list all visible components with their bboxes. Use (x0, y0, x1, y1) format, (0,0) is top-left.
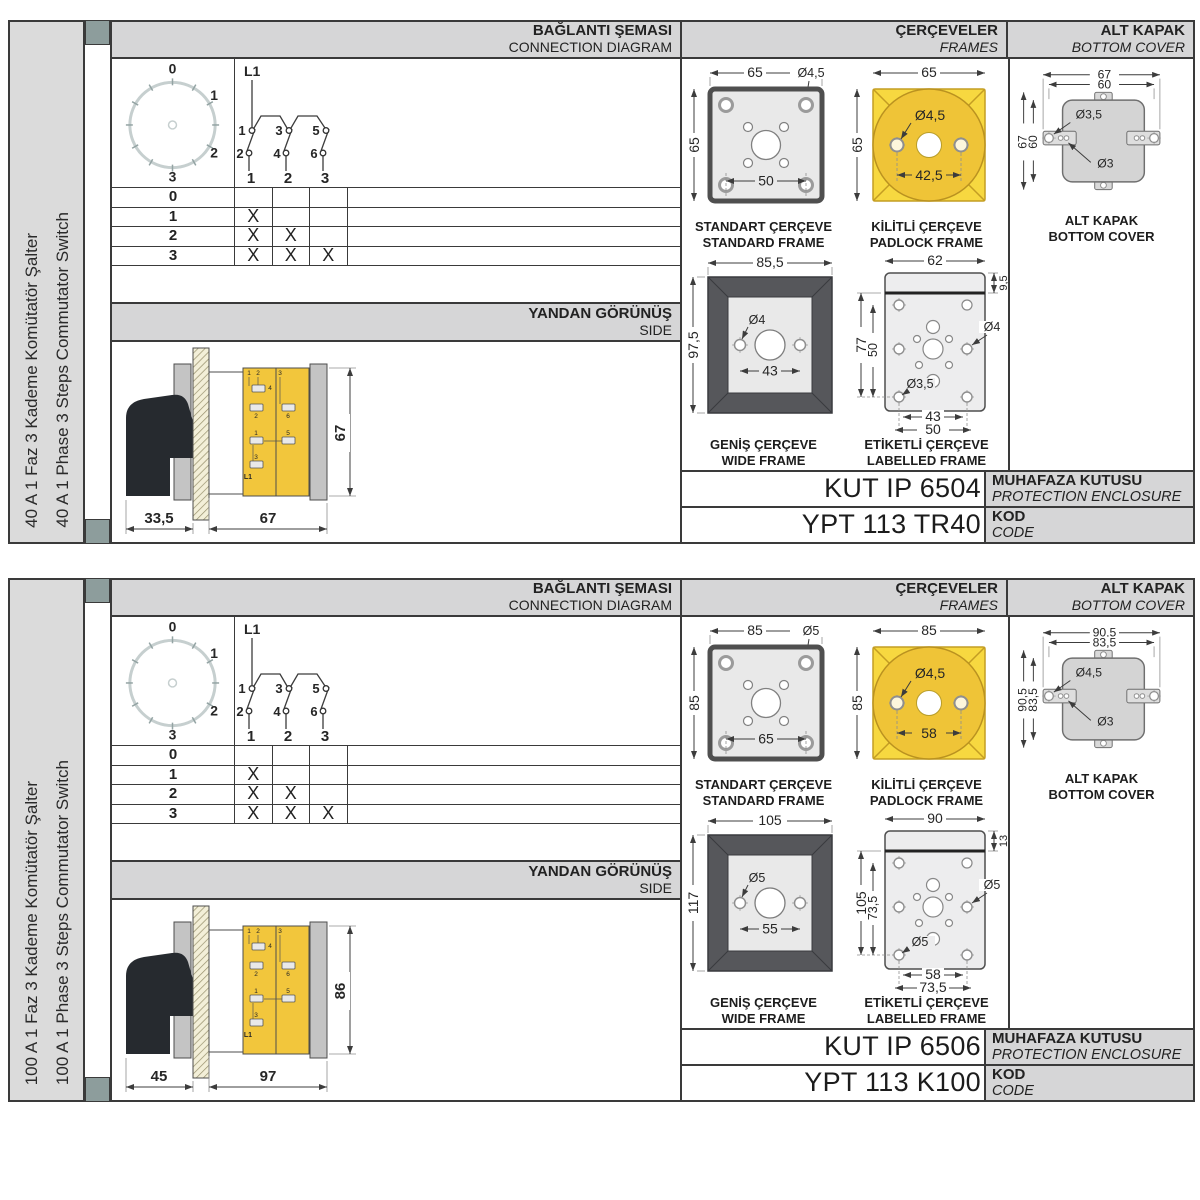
dial-pos-2: 2 (210, 145, 218, 161)
dim-cover-w2: 60 (1098, 77, 1112, 91)
strip-square-top (85, 20, 110, 45)
wiring-schematic: L1 (235, 617, 679, 743)
spacer (112, 824, 680, 860)
header-connection-en: CONNECTION DIAGRAM (120, 40, 672, 56)
row-label: 1 (112, 208, 235, 227)
row-filler (348, 805, 681, 824)
contact-lower-2: 2 (236, 704, 243, 719)
dial-pos-2: 2 (210, 703, 218, 719)
dim-padlock-width: 85 (921, 622, 937, 638)
center-shaft-hole (755, 330, 785, 360)
row-filler (348, 746, 681, 765)
enclosure-row: KUT IP 6506 MUHAFAZA KUTUSU PROTECTION E… (682, 1028, 1193, 1064)
dim-cover-w2: 83,5 (1093, 635, 1117, 649)
circuit-cell: L1 (235, 617, 680, 745)
dial-pos-3: 3 (169, 169, 177, 185)
caption-labelled-en: LABELLED FRAME (864, 453, 988, 469)
dim-labelled-width: 62 (927, 253, 943, 268)
bottom-cover-caption: ALT KAPAK BOTTOM COVER (1049, 213, 1155, 246)
labelled-frame-drawing: 62 9,5 77 50 (845, 253, 1008, 437)
caption-standard-en: STANDARD FRAME (695, 235, 832, 251)
bottom-cover-header: ALT KAPAK BOTTOM COVER (1008, 580, 1193, 617)
center-shaft-hole (752, 689, 781, 718)
header-side-en: SIDE (120, 323, 672, 339)
mini-label: 3 (254, 454, 258, 461)
header-cover-tr: ALT KAPAK (1016, 23, 1185, 40)
contact-lower-4: 4 (273, 146, 281, 161)
caption-wide-en: WIDE FRAME (710, 1011, 817, 1027)
dim-wide-hole-dia: Ø4 (749, 313, 766, 327)
contact-upper-1: 1 (238, 681, 245, 696)
table-row: 2 X X (112, 227, 680, 247)
product-code-value: YPT 113 TR40 (682, 508, 984, 542)
frames-panel: 65 Ø4,5 65 (682, 59, 1008, 470)
standard-frame-caption: STANDART ÇERÇEVE STANDARD FRAME (695, 219, 832, 252)
output-numbers: 1 2 3 (247, 170, 329, 185)
table-row: 1 X (112, 208, 680, 228)
mark-cell (235, 188, 273, 207)
row-label: 1 (112, 766, 235, 785)
enclosure-row: KUT IP 6504 MUHAFAZA KUTUSU PROTECTION E… (682, 470, 1193, 506)
diagram-row: 0 1 2 3 L1 (112, 617, 680, 746)
mark-cell: X (235, 208, 273, 227)
product-side-label: 100 A 1 Faz 3 Kademe Komütatör Şalter 10… (8, 578, 85, 1102)
wide-frame-drawing: 85,5 97,5 (682, 253, 845, 437)
enclosure-code-value: KUT IP 6506 (682, 1030, 984, 1064)
frames-header: ÇERÇEVELER FRAMES (682, 580, 1008, 617)
dim-labelled-corner-dia: Ø5 (912, 935, 929, 949)
standard-frame-caption: STANDART ÇERÇEVE STANDARD FRAME (695, 777, 832, 810)
dim-side-body: 67 (260, 510, 277, 527)
dim-side-front: 33,5 (144, 510, 173, 527)
header-cover-en: BOTTOM COVER (1016, 40, 1185, 56)
mini-label: 5 (286, 430, 290, 437)
header-frames-en: FRAMES (690, 598, 998, 614)
table-row: 1 X (112, 766, 680, 786)
wiring-schematic: L1 (235, 59, 679, 185)
mini-label: 4 (268, 943, 272, 950)
contact-upper-1: 1 (238, 123, 245, 138)
contact-upper-5: 5 (312, 681, 319, 696)
dim-labelled-strip: 13 (998, 835, 1008, 847)
mark-cell: X (235, 227, 273, 246)
mark-cell: X (273, 785, 311, 804)
dim-cover-dia2: Ø3 (1097, 156, 1113, 170)
dim-wide-height: 117 (685, 892, 701, 915)
mark-cell (310, 785, 348, 804)
circuit-phase-label: L1 (244, 63, 261, 79)
dim-standard-hole-dia: Ø4,5 (797, 66, 824, 80)
caption-standard-tr: STANDART ÇERÇEVE (695, 219, 832, 235)
switch-side-body: 1 2 4 2 3 6 1 5 3 L1 (126, 348, 327, 520)
dim-padlock-hole-dia: Ø4,5 (915, 665, 946, 681)
mini-label: 1 (247, 370, 251, 377)
contact-lower-4: 4 (273, 704, 281, 719)
row-filler (348, 227, 681, 246)
product-title-english: 40 A 1 Phase 3 Steps Commutator Switch (54, 212, 71, 528)
caption-cover-en: BOTTOM COVER (1049, 787, 1155, 803)
dim-side-height: 67 (332, 425, 349, 442)
mini-label: 4 (268, 385, 272, 392)
mark-cell: X (310, 247, 348, 266)
mark-cell (310, 188, 348, 207)
connection-diagram-panel: 0 1 2 3 L1 (112, 617, 682, 1100)
wide-frame-figure: 105 117 (682, 811, 845, 1028)
dim-labelled-side-dia: Ø5 (984, 878, 1001, 892)
product-main-panel: BAĞLANTI ŞEMASI CONNECTION DIAGRAM ÇERÇE… (110, 578, 1195, 1102)
dim-standard-width: 65 (747, 64, 763, 80)
code-row: YPT 113 K100 KOD CODE (682, 1064, 1193, 1100)
caption-labelled-en: LABELLED FRAME (864, 1011, 988, 1027)
dim-padlock-hole-dia: Ø4,5 (915, 107, 946, 123)
enclosure-label: MUHAFAZA KUTUSU PROTECTION ENCLOSURE (984, 1030, 1193, 1064)
side-view-area: 1 2 4 2 3 6 1 5 3 L1 (112, 900, 680, 1100)
code-label-en: CODE (992, 1083, 1187, 1100)
contact-upper-5: 5 (312, 123, 319, 138)
circuit-cell: L1 (235, 59, 680, 187)
contact-upper-3: 3 (275, 123, 282, 138)
enclosure-label: MUHAFAZA KUTUSU PROTECTION ENCLOSURE (984, 472, 1193, 506)
mini-label: 3 (254, 1012, 258, 1019)
mini-label: 2 (256, 928, 260, 935)
bottom-cover-caption: ALT KAPAK BOTTOM COVER (1049, 771, 1155, 804)
side-view-drawing: 1 2 4 2 3 6 1 5 3 L1 (112, 900, 678, 1096)
header-cover-en: BOTTOM COVER (1016, 598, 1185, 614)
caption-labelled-tr: ETİKETLİ ÇERÇEVE (864, 437, 988, 453)
dim-padlock-spacing: 58 (921, 725, 937, 741)
row-filler (348, 188, 681, 207)
mini-label: 1 (254, 988, 258, 995)
binding-strip (85, 578, 110, 1102)
contact-lower-2: 2 (236, 146, 243, 161)
padlock-frame-figure: 85 85 (845, 619, 1008, 811)
dial-ticks (126, 78, 219, 171)
caption-wide-en: WIDE FRAME (710, 453, 817, 469)
code-label-en: CODE (992, 525, 1187, 542)
caption-padlock-en: PADLOCK FRAME (870, 793, 983, 809)
code-row: YPT 113 TR40 KOD CODE (682, 506, 1193, 542)
mini-label: 3 (278, 928, 282, 935)
frames-header: ÇERÇEVELER FRAMES (682, 22, 1008, 59)
dim-side-front: 45 (151, 1068, 168, 1085)
dial-pos-3: 3 (169, 727, 177, 743)
mark-cell: X (235, 785, 273, 804)
bottom-cover-header: ALT KAPAK BOTTOM COVER (1008, 22, 1193, 59)
product-code-value: YPT 113 K100 (682, 1066, 984, 1100)
dim-labelled-strip: 9,5 (998, 275, 1008, 290)
product-title-turkish: 100 A 1 Faz 3 Kademe Komütatör Şalter (23, 781, 40, 1085)
side-view-header: YANDAN GÖRÜNÜŞ SIDE (112, 860, 680, 900)
dim-wide-spacing: 55 (762, 921, 778, 937)
mark-cell: X (273, 227, 311, 246)
row-label: 3 (112, 805, 235, 824)
dim-wide-height: 97,5 (685, 331, 701, 358)
dim-padlock-height: 85 (849, 695, 865, 711)
caption-padlock-en: PADLOCK FRAME (870, 235, 983, 251)
dim-wide-spacing: 43 (762, 363, 778, 379)
standard-frame-figure: 65 Ø4,5 65 (682, 61, 845, 253)
padlock-frame-drawing: 65 65 (845, 61, 1008, 219)
header-connection-tr: BAĞLANTI ŞEMASI (120, 23, 672, 40)
output-1: 1 (247, 170, 255, 185)
row-filler (348, 766, 681, 785)
strip-square-bottom (85, 1077, 110, 1102)
dim-cover-dia1: Ø4,5 (1076, 666, 1103, 680)
mark-cell: X (235, 805, 273, 824)
product-side-label: 40 A 1 Faz 3 Kademe Komütatör Şalter 40 … (8, 20, 85, 544)
frames-panel: 85 Ø5 85 (682, 617, 1008, 1028)
dim-wide-width: 105 (758, 812, 782, 828)
mini-label: 3 (278, 370, 282, 377)
wide-frame-figure: 85,5 97,5 (682, 253, 845, 470)
dim-labelled-s2: 73,5 (919, 979, 946, 995)
output-1: 1 (247, 728, 255, 743)
mark-cell (273, 766, 311, 785)
standard-frame-drawing: 65 Ø4,5 65 (682, 61, 845, 219)
circuit-phase-label: L1 (244, 621, 261, 637)
caption-wide-tr: GENİŞ ÇERÇEVE (710, 437, 817, 453)
center-shaft-hole (755, 888, 785, 918)
side-view-drawing: 1 2 4 2 3 6 1 5 3 L1 (112, 342, 678, 538)
header-side-tr: YANDAN GÖRÜNÜŞ (120, 864, 672, 881)
padlock-frame-caption: KİLİTLİ ÇERÇEVE PADLOCK FRAME (870, 219, 983, 252)
dial-pos-1: 1 (210, 645, 218, 661)
mark-cell (235, 746, 273, 765)
strip-square-bottom (85, 519, 110, 544)
table-row: 3 X X X (112, 805, 680, 825)
bottom-cover-panel: 90,5 83,5 90,5 83,5 (1008, 617, 1193, 1028)
dial-pos-0: 0 (169, 60, 177, 76)
dial-ticks (126, 636, 219, 729)
header-connection-en: CONNECTION DIAGRAM (120, 598, 672, 614)
dim-labelled-s2: 50 (925, 421, 941, 437)
mark-cell (310, 766, 348, 785)
dim-standard-height: 85 (686, 695, 702, 711)
bottom-cover-panel: 67 60 67 60 (1008, 59, 1193, 470)
code-label-tr: KOD (992, 1066, 1187, 1083)
mini-label: 1 (254, 430, 258, 437)
caption-standard-en: STANDARD FRAME (695, 793, 832, 809)
side-view-area: 1 2 4 2 3 6 1 5 3 L1 (112, 342, 680, 542)
contact-lower-6: 6 (310, 704, 317, 719)
caption-padlock-tr: KİLİTLİ ÇERÇEVE (870, 777, 983, 793)
caption-wide-tr: GENİŞ ÇERÇEVE (710, 995, 817, 1011)
diagram-row: 0 1 2 3 L1 (112, 59, 680, 188)
mini-label: 5 (286, 988, 290, 995)
dim-standard-spacing: 65 (758, 731, 774, 747)
row-label: 3 (112, 247, 235, 266)
output-numbers: 1 2 3 (247, 728, 329, 743)
mini-label: 2 (256, 370, 260, 377)
row-label: 2 (112, 785, 235, 804)
wide-frame-caption: GENİŞ ÇERÇEVE WIDE FRAME (710, 995, 817, 1028)
output-3: 3 (321, 728, 329, 743)
table-row: 3 X X X (112, 247, 680, 267)
mark-cell: X (310, 805, 348, 824)
dial-cell: 0 1 2 3 (112, 59, 235, 187)
caption-cover-en: BOTTOM COVER (1049, 229, 1155, 245)
padlock-frame-drawing: 85 85 (845, 619, 1008, 777)
mark-cell: X (273, 805, 311, 824)
end-plate (310, 364, 327, 500)
connection-diagram-header: BAĞLANTI ŞEMASI CONNECTION DIAGRAM (112, 580, 682, 617)
header-side-en: SIDE (120, 881, 672, 897)
caption-cover-tr: ALT KAPAK (1049, 213, 1155, 229)
padlock-frame-caption: KİLİTLİ ÇERÇEVE PADLOCK FRAME (870, 777, 983, 810)
caption-standard-tr: STANDART ÇERÇEVE (695, 777, 832, 793)
dim-wide-width: 85,5 (756, 254, 783, 270)
product-title-english: 100 A 1 Phase 3 Steps Commutator Switch (54, 760, 71, 1085)
dim-wide-hole-dia: Ø5 (749, 871, 766, 885)
output-2: 2 (284, 728, 292, 743)
mark-cell (310, 746, 348, 765)
dim-side-height: 86 (332, 983, 349, 1000)
dial-pos-0: 0 (169, 618, 177, 634)
product-main-panel: BAĞLANTI ŞEMASI CONNECTION DIAGRAM ÇERÇE… (110, 20, 1195, 544)
caption-cover-tr: ALT KAPAK (1049, 771, 1155, 787)
dim-labelled-side-dia: Ø4 (984, 320, 1001, 334)
dim-cover-h2: 83,5 (1026, 688, 1040, 712)
dim-cover-h2: 60 (1026, 135, 1040, 149)
contact-upper-3: 3 (275, 681, 282, 696)
mini-label: 6 (286, 971, 290, 978)
standard-frame-drawing: 85 Ø5 85 (682, 619, 845, 777)
labelled-frame-figure: 90 13 105 73,5 (845, 811, 1008, 1028)
enclosure-label-en: PROTECTION ENCLOSURE (992, 1047, 1187, 1064)
dim-side-body: 97 (260, 1068, 277, 1085)
output-3: 3 (321, 170, 329, 185)
mark-cell (310, 227, 348, 246)
dim-labelled-width: 90 (927, 811, 943, 826)
row-filler (348, 785, 681, 804)
padlock-frame-figure: 65 65 (845, 61, 1008, 253)
center-shaft-hole (917, 133, 942, 158)
header-side-tr: YANDAN GÖRÜNÜŞ (120, 306, 672, 323)
switch-position-dial: 0 1 2 3 (112, 59, 233, 185)
mark-cell (273, 746, 311, 765)
row-filler (348, 247, 681, 266)
mini-label: 2 (254, 413, 258, 420)
product-title-turkish: 40 A 1 Faz 3 Kademe Komütatör Şalter (23, 233, 40, 528)
labelled-frame-figure: 62 9,5 77 50 (845, 253, 1008, 470)
mini-label: 2 (254, 971, 258, 978)
table-row: 2 X X (112, 785, 680, 805)
mark-cell (273, 208, 311, 227)
mark-cell (310, 208, 348, 227)
row-filler (348, 208, 681, 227)
enclosure-label-tr: MUHAFAZA KUTUSU (992, 1030, 1187, 1047)
wide-frame-caption: GENİŞ ÇERÇEVE WIDE FRAME (710, 437, 817, 470)
mini-label: 6 (286, 413, 290, 420)
enclosure-label-en: PROTECTION ENCLOSURE (992, 489, 1187, 506)
dim-padlock-height: 65 (849, 137, 865, 153)
dim-labelled-corner-dia: Ø3,5 (906, 377, 933, 391)
dim-cover-dia1: Ø3,5 (1076, 108, 1103, 122)
header-frames-en: FRAMES (690, 40, 998, 56)
mounting-plate-hatched (193, 348, 209, 520)
header-connection-tr: BAĞLANTI ŞEMASI (120, 581, 672, 598)
position-table: 0 1 X 2 X X (112, 188, 680, 266)
dim-standard-hole-dia: Ø5 (803, 624, 820, 638)
dim-cover-dia2: Ø3 (1097, 714, 1113, 728)
caption-padlock-tr: KİLİTLİ ÇERÇEVE (870, 219, 983, 235)
strip-square-top (85, 578, 110, 603)
code-label: KOD CODE (984, 508, 1193, 542)
bottom-cover-drawing: 67 60 67 60 (1010, 67, 1193, 213)
mark-cell: X (235, 247, 273, 266)
labelled-frame-drawing: 90 13 105 73,5 (845, 811, 1008, 995)
dial-pos-1: 1 (210, 87, 218, 103)
mini-label: 1 (247, 928, 251, 935)
dim-labelled-inner-height: 50 (866, 343, 880, 357)
product-section: 100 A 1 Faz 3 Kademe Komütatör Şalter 10… (8, 578, 1195, 1100)
table-row: 0 (112, 188, 680, 208)
mark-cell (273, 188, 311, 207)
wide-frame-drawing: 105 117 (682, 811, 845, 995)
side-view-header: YANDAN GÖRÜNÜŞ SIDE (112, 302, 680, 342)
switch-position-dial: 0 1 2 3 (112, 617, 233, 743)
dim-standard-width: 85 (747, 622, 763, 638)
dim-padlock-spacing: 42,5 (915, 167, 942, 183)
dim-standard-spacing: 50 (758, 173, 774, 189)
row-label: 0 (112, 188, 235, 207)
position-table: 0 1 X 2 X X (112, 746, 680, 824)
code-label-tr: KOD (992, 508, 1187, 525)
labelled-frame-caption: ETİKETLİ ÇERÇEVE LABELLED FRAME (864, 437, 988, 470)
header-cover-tr: ALT KAPAK (1016, 581, 1185, 598)
code-label: KOD CODE (984, 1066, 1193, 1100)
dial-cell: 0 1 2 3 (112, 617, 235, 745)
row-label: 2 (112, 227, 235, 246)
caption-labelled-tr: ETİKETLİ ÇERÇEVE (864, 995, 988, 1011)
center-shaft-hole (917, 691, 942, 716)
center-shaft-hole (752, 131, 781, 160)
bottom-cover-drawing: 90,5 83,5 90,5 83,5 (1010, 625, 1193, 771)
row-label: 0 (112, 746, 235, 765)
mark-cell: X (235, 766, 273, 785)
header-frames-tr: ÇERÇEVELER (690, 23, 998, 40)
mounting-plate-hatched (193, 906, 209, 1078)
table-row: 0 (112, 746, 680, 766)
dim-standard-height: 65 (686, 137, 702, 153)
contact-lower-6: 6 (310, 146, 317, 161)
enclosure-code-value: KUT IP 6504 (682, 472, 984, 506)
mini-label-l1: L1 (244, 1032, 252, 1039)
dim-labelled-inner-height: 73,5 (866, 896, 880, 920)
catalog-page: 40 A 1 Faz 3 Kademe Komütatör Şalter 40 … (0, 0, 1200, 1100)
output-2: 2 (284, 170, 292, 185)
product-section: 40 A 1 Faz 3 Kademe Komütatör Şalter 40 … (8, 20, 1195, 542)
end-plate (310, 922, 327, 1058)
standard-frame-figure: 85 Ø5 85 (682, 619, 845, 811)
connection-diagram-header: BAĞLANTI ŞEMASI CONNECTION DIAGRAM (112, 22, 682, 59)
connection-diagram-panel: 0 1 2 3 L1 (112, 59, 682, 542)
labelled-frame-caption: ETİKETLİ ÇERÇEVE LABELLED FRAME (864, 995, 988, 1028)
mark-cell: X (273, 247, 311, 266)
binding-strip (85, 20, 110, 544)
switch-side-body: 1 2 4 2 3 6 1 5 3 L1 (126, 906, 327, 1078)
dim-padlock-width: 65 (921, 64, 937, 80)
header-frames-tr: ÇERÇEVELER (690, 581, 998, 598)
mini-label-l1: L1 (244, 474, 252, 481)
enclosure-label-tr: MUHAFAZA KUTUSU (992, 472, 1187, 489)
spacer (112, 266, 680, 302)
